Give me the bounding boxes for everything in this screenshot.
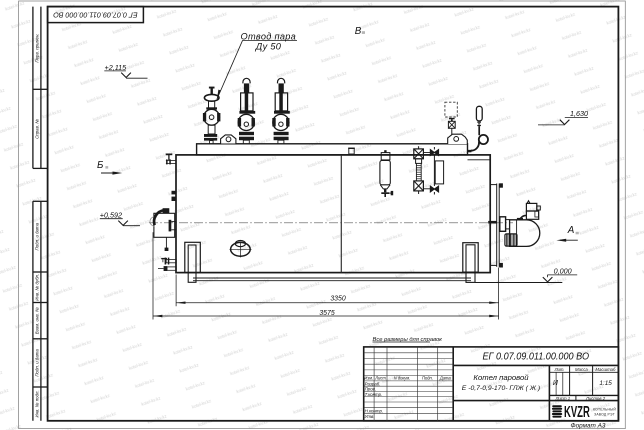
- svg-text:Н.контр.: Н.контр.: [365, 408, 384, 413]
- svg-text:Масса: Масса: [575, 367, 588, 372]
- svg-text:Дата: Дата: [439, 376, 452, 381]
- svg-text:Масштаб: Масштаб: [595, 367, 616, 372]
- svg-text:+2,115: +2,115: [105, 63, 128, 72]
- svg-text:Б: Б: [97, 160, 104, 171]
- svg-text:0,000: 0,000: [554, 267, 572, 276]
- svg-text:Отвод пара: Отвод пара: [241, 32, 297, 42]
- svg-text:В: В: [355, 26, 362, 37]
- svg-text:Инв. № подл.: Инв. № подл.: [35, 390, 40, 417]
- svg-text:3575: 3575: [319, 310, 334, 317]
- svg-text:Формат А3: Формат А3: [571, 422, 606, 429]
- svg-text:ЗАВОД РЭТ: ЗАВОД РЭТ: [594, 412, 615, 416]
- svg-text:Лит.: Лит.: [554, 367, 565, 372]
- svg-text:Лист 1: Лист 1: [554, 396, 570, 401]
- svg-text:А: А: [567, 225, 575, 236]
- svg-text:КОТЕЛЬНЫЙ: КОТЕЛЬНЫЙ: [593, 407, 616, 411]
- svg-text:Пров.: Пров.: [365, 387, 377, 392]
- svg-text:Перв. примен.: Перв. примен.: [35, 33, 40, 62]
- svg-text:Подп. и дата: Подп. и дата: [35, 222, 40, 250]
- svg-text:N докум.: N докум.: [394, 376, 411, 381]
- svg-text:1:15: 1:15: [599, 380, 612, 387]
- svg-text:Е -0,7-0,9-170- ГЛЖ ( Ж ): Е -0,7-0,9-170- ГЛЖ ( Ж ): [462, 385, 540, 392]
- svg-text:Лист: Лист: [374, 376, 386, 381]
- svg-text:3350: 3350: [330, 296, 345, 303]
- svg-text:Ду 50: Ду 50: [255, 42, 282, 52]
- svg-text:Утв.: Утв.: [365, 414, 375, 419]
- svg-text:Т.контр.: Т.контр.: [365, 392, 383, 397]
- svg-text:+0,592: +0,592: [100, 210, 122, 219]
- svg-text:Разраб.: Разраб.: [365, 381, 381, 386]
- svg-text:Изм.: Изм.: [364, 376, 373, 381]
- svg-text:ЕГ 0.07.09.011.00.000 ВО: ЕГ 0.07.09.011.00.000 ВО: [483, 351, 590, 362]
- svg-text:1,630: 1,630: [570, 109, 588, 118]
- svg-text:Подп.: Подп.: [422, 376, 433, 381]
- svg-text:Листов 2: Листов 2: [585, 396, 606, 401]
- svg-text:ЕГ 0.07.09.011.00.000 ВО: ЕГ 0.07.09.011.00.000 ВО: [53, 10, 138, 19]
- svg-text:Котел паровой: Котел паровой: [473, 373, 529, 382]
- svg-text:Взам. инв. №: Взам. инв. №: [35, 307, 40, 334]
- svg-text:Справ. №: Справ. №: [35, 119, 40, 139]
- svg-text:Инв. № дубл.: Инв. № дубл.: [35, 274, 40, 301]
- svg-text:Подп. и дата: Подп. и дата: [35, 349, 40, 377]
- svg-text:KVZR: KVZR: [564, 404, 590, 421]
